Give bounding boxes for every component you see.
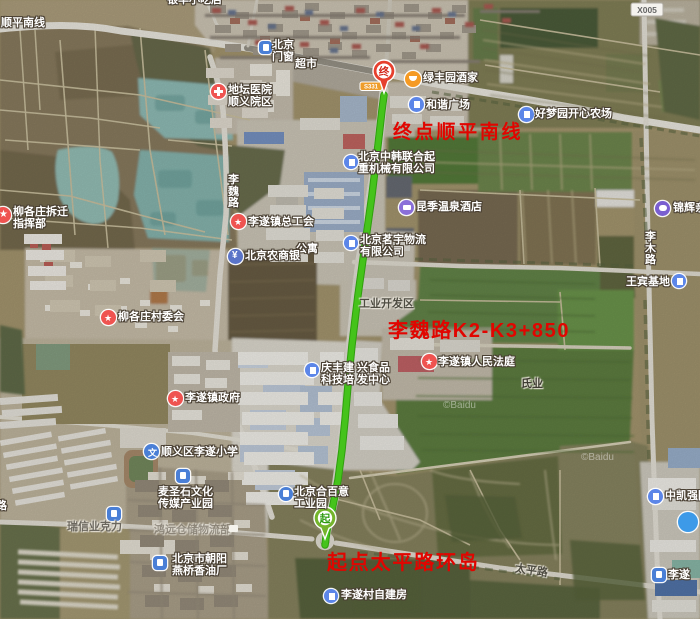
- svg-text:起: 起: [319, 512, 331, 525]
- svg-text:终: 终: [379, 65, 390, 78]
- svg-text:X005: X005: [637, 5, 657, 15]
- svg-text:S331: S331: [364, 85, 379, 91]
